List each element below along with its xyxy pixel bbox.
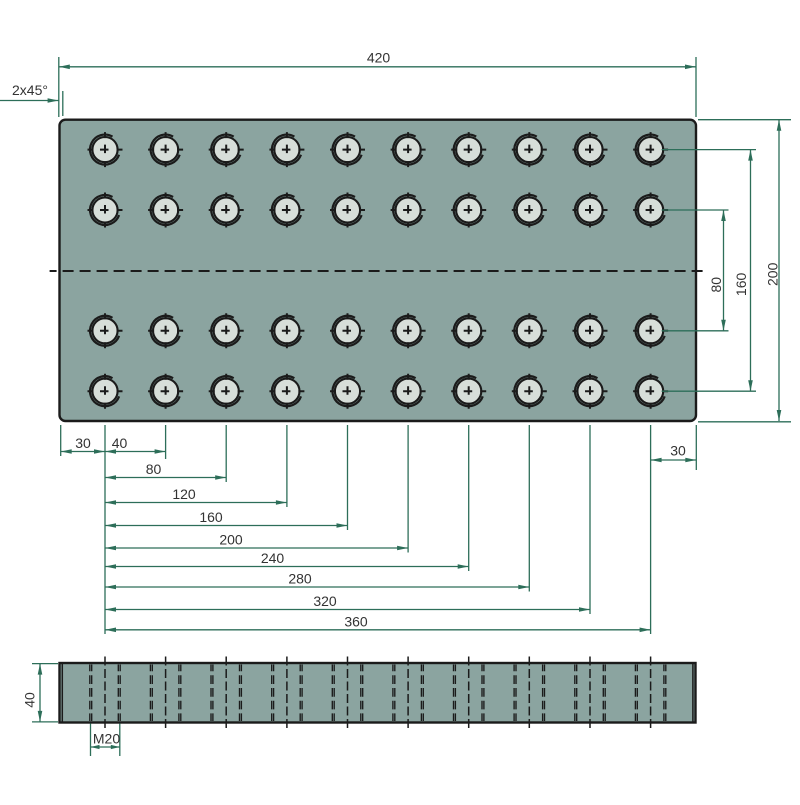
svg-text:30: 30	[75, 435, 91, 451]
svg-text:280: 280	[288, 571, 312, 587]
svg-text:40: 40	[112, 435, 128, 451]
svg-text:40: 40	[22, 692, 38, 708]
svg-text:200: 200	[765, 262, 781, 286]
svg-text:160: 160	[733, 273, 749, 297]
svg-text:M20: M20	[93, 731, 120, 747]
svg-text:160: 160	[199, 509, 223, 525]
svg-text:240: 240	[261, 550, 285, 566]
svg-text:200: 200	[219, 532, 243, 548]
svg-text:80: 80	[708, 277, 724, 293]
svg-text:420: 420	[367, 50, 391, 66]
svg-text:2x45°: 2x45°	[12, 82, 48, 98]
svg-text:120: 120	[172, 486, 196, 502]
svg-text:320: 320	[313, 593, 337, 609]
svg-text:30: 30	[670, 443, 686, 459]
svg-text:360: 360	[344, 613, 368, 629]
svg-text:80: 80	[146, 461, 162, 477]
